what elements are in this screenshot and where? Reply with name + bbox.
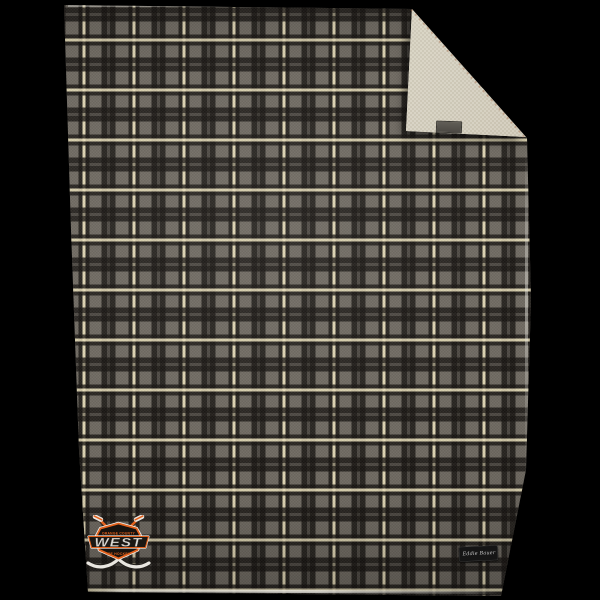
brand-tag-label: Eddie Bauer xyxy=(462,550,495,557)
logo-main-text: WEST xyxy=(95,535,144,549)
team-logo-badge: ORANGE COUNTY WEST ICE HOCKEY xyxy=(85,515,152,573)
sherpa-lining xyxy=(0,0,600,600)
logo-bottom-text: ICE HOCKEY xyxy=(107,551,131,556)
blanket: Eddie Bauer xyxy=(0,0,600,600)
brand-tag: Eddie Bauer xyxy=(459,545,499,562)
fold-fabric-tag xyxy=(436,121,462,134)
folded-corner xyxy=(0,0,600,600)
product-photo: Eddie Bauer xyxy=(0,0,600,600)
